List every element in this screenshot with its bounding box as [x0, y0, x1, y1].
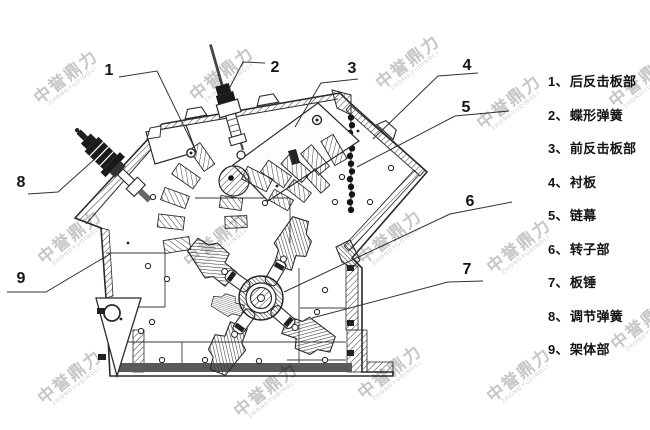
- legend-item-3: 3、前反击板部: [548, 142, 650, 156]
- callout-number-8: 8: [17, 174, 26, 191]
- legend-item-number: 5、: [548, 209, 569, 223]
- legend-item-4: 4、衬板: [548, 176, 650, 190]
- page: 123456789 1、后反击板部2、蝶形弹簧3、前反击板部4、衬板5、链幕6、…: [0, 0, 650, 430]
- legend-item-label: 衬板: [570, 176, 597, 190]
- legend-item-number: 6、: [548, 243, 569, 257]
- legend-item-label: 调节弹簧: [570, 310, 623, 324]
- legend-item-number: 7、: [548, 276, 569, 290]
- legend-item-number: 1、: [548, 75, 569, 89]
- legend-item-2: 2、蝶形弹簧: [548, 109, 650, 123]
- legend-item-number: 2、: [548, 109, 569, 123]
- callout-leader-2: [229, 62, 265, 89]
- callout-number-4: 4: [463, 57, 472, 74]
- legend-item-number: 8、: [548, 310, 569, 324]
- bottom-ledge-hatch: [367, 362, 393, 372]
- legend-item-1: 1、后反击板部: [548, 75, 650, 89]
- legend-item-label: 蝶形弹簧: [570, 109, 623, 123]
- legend-item-5: 5、链幕: [548, 209, 650, 223]
- callout-number-3: 3: [348, 60, 357, 77]
- legend-item-9: 9、架体部: [548, 343, 650, 357]
- legend-item-label: 转子部: [570, 243, 610, 257]
- legend-item-label: 板锤: [570, 276, 597, 290]
- legend-item-number: 4、: [548, 176, 569, 190]
- legend-item-6: 6、转子部: [548, 243, 650, 257]
- legend-item-label: 后反击板部: [570, 75, 637, 89]
- legend-item-number: 3、: [548, 142, 569, 156]
- callout-number-7: 7: [463, 261, 472, 278]
- legend-item-8: 8、调节弹簧: [548, 310, 650, 324]
- callout-number-6: 6: [466, 193, 475, 210]
- legend-item-label: 架体部: [570, 343, 610, 357]
- legend-item-label: 链幕: [570, 209, 597, 223]
- legend-item-label: 前反击板部: [570, 142, 637, 156]
- callout-leader-8: [28, 157, 97, 194]
- legend-item-7: 7、板锤: [548, 276, 650, 290]
- callout-number-5: 5: [462, 99, 471, 116]
- front-plate-hinge: [219, 166, 249, 196]
- legend: 1、后反击板部2、蝶形弹簧3、前反击板部4、衬板5、链幕6、转子部7、板锤8、调…: [548, 75, 650, 377]
- callout-number-2: 2: [271, 59, 280, 76]
- legend-item-number: 9、: [548, 343, 569, 357]
- callout-number-9: 9: [17, 270, 26, 287]
- rotor-shaft: [258, 295, 265, 302]
- callout-number-1: 1: [105, 62, 114, 79]
- foot-hole: [104, 305, 120, 321]
